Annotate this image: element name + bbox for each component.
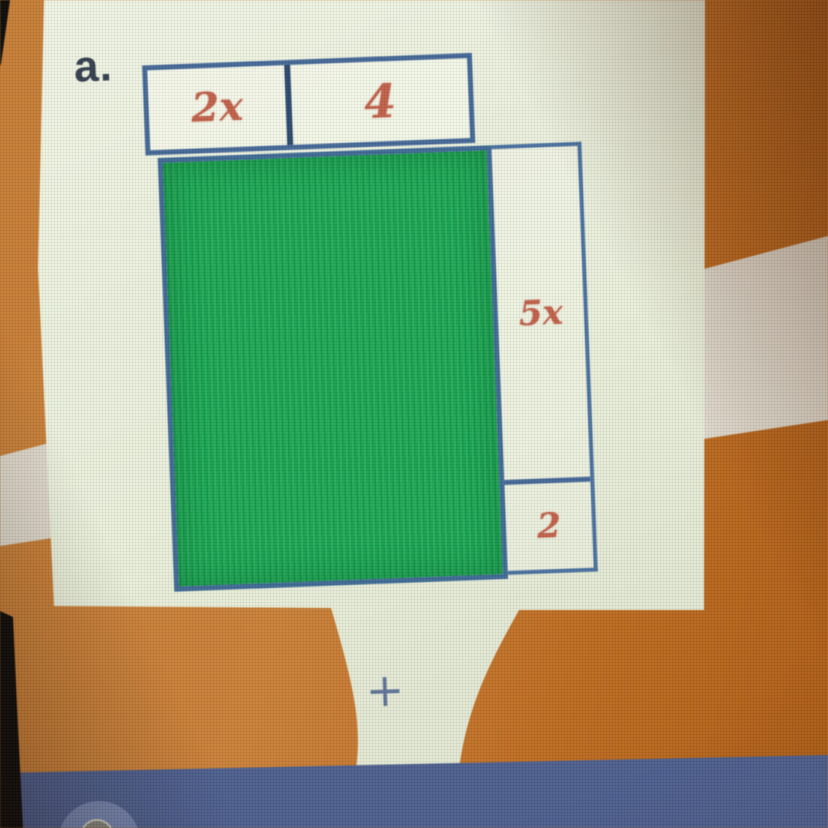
dimension-label-5x: 5x (518, 295, 563, 331)
top-dimension-row: 2x 4 (142, 53, 475, 156)
dimension-cell-2: 2 (504, 482, 593, 571)
right-dimension-column: 5x 2 (491, 142, 597, 575)
green-rectangle (158, 145, 508, 592)
photo-frame: a. 2x 4 5x 2 + (0, 0, 828, 828)
dimension-cell-4: 4 (290, 58, 470, 145)
dimension-label-2x: 2x (191, 87, 244, 129)
screen-edge-top-left (0, 0, 10, 66)
dimension-label-2: 2 (537, 509, 562, 544)
dimension-cell-2x: 2x (147, 65, 293, 150)
dimension-cell-5x: 5x (492, 146, 591, 485)
photo-of-screen: a. 2x 4 5x 2 + (0, 0, 828, 828)
dimension-label-4: 4 (363, 78, 397, 125)
part-label: a. (73, 41, 113, 92)
area-model-diagram: 2x 4 5x 2 (129, 31, 610, 608)
plus-icon[interactable]: + (361, 663, 409, 717)
screen-edge-bottom-left (0, 611, 23, 828)
